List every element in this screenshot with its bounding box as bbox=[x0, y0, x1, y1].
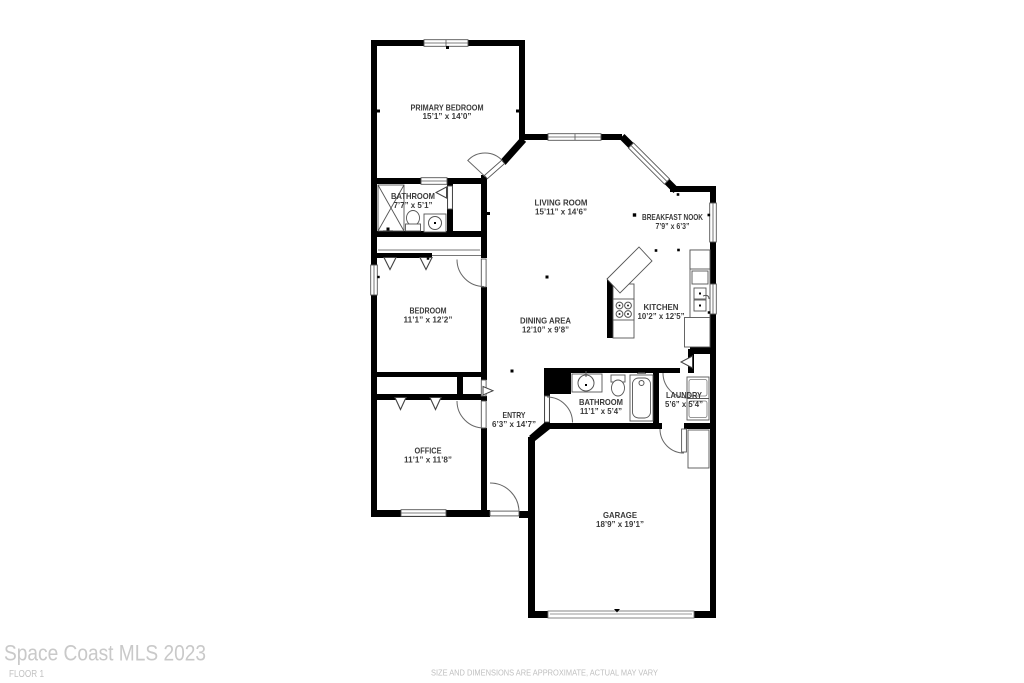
svg-text:FLOOR 1: FLOOR 1 bbox=[9, 669, 44, 680]
svg-text:10’2” x 12’5”: 10’2” x 12’5” bbox=[638, 312, 685, 321]
svg-text:12’10” x 9’8”: 12’10” x 9’8” bbox=[522, 325, 569, 334]
svg-text:15’11” x 14’6”: 15’11” x 14’6” bbox=[535, 207, 587, 216]
svg-text:SIZE AND DIMENSIONS ARE APPROX: SIZE AND DIMENSIONS ARE APPROXIMATE, ACT… bbox=[431, 669, 659, 678]
svg-text:BATHROOM: BATHROOM bbox=[579, 397, 623, 407]
svg-text:11’1” x 5’4”: 11’1” x 5’4” bbox=[580, 407, 622, 416]
svg-text:LAUNDRY: LAUNDRY bbox=[666, 390, 702, 400]
svg-text:Space Coast MLS 2023: Space Coast MLS 2023 bbox=[4, 641, 206, 666]
svg-text:PRIMARY BEDROOM: PRIMARY BEDROOM bbox=[411, 102, 484, 112]
svg-text:15’1” x 14’0”: 15’1” x 14’0” bbox=[423, 112, 472, 121]
svg-text:11’1” x 12’2”: 11’1” x 12’2” bbox=[404, 315, 453, 324]
svg-text:7’7” x 5’1”: 7’7” x 5’1” bbox=[394, 201, 433, 210]
svg-text:BEDROOM: BEDROOM bbox=[410, 306, 447, 316]
svg-text:LIVING ROOM: LIVING ROOM bbox=[535, 198, 588, 208]
svg-text:DINING AREA: DINING AREA bbox=[520, 316, 571, 326]
svg-text:KITCHEN: KITCHEN bbox=[644, 302, 679, 312]
svg-text:BREAKFAST NOOK: BREAKFAST NOOK bbox=[642, 212, 703, 222]
svg-text:18’9” x 19’1”: 18’9” x 19’1” bbox=[596, 520, 644, 529]
svg-text:11’1” x 11’8”: 11’1” x 11’8” bbox=[404, 455, 452, 464]
svg-text:5’6” x 5’4”: 5’6” x 5’4” bbox=[665, 400, 703, 409]
svg-text:BATHROOM: BATHROOM bbox=[391, 191, 435, 201]
svg-text:6’3” x 14’7”: 6’3” x 14’7” bbox=[492, 420, 536, 429]
svg-text:GARAGE: GARAGE bbox=[603, 510, 637, 520]
svg-text:ENTRY: ENTRY bbox=[503, 410, 526, 420]
svg-text:OFFICE: OFFICE bbox=[415, 446, 442, 456]
svg-text:7’9” x 6’3”: 7’9” x 6’3” bbox=[656, 222, 690, 231]
